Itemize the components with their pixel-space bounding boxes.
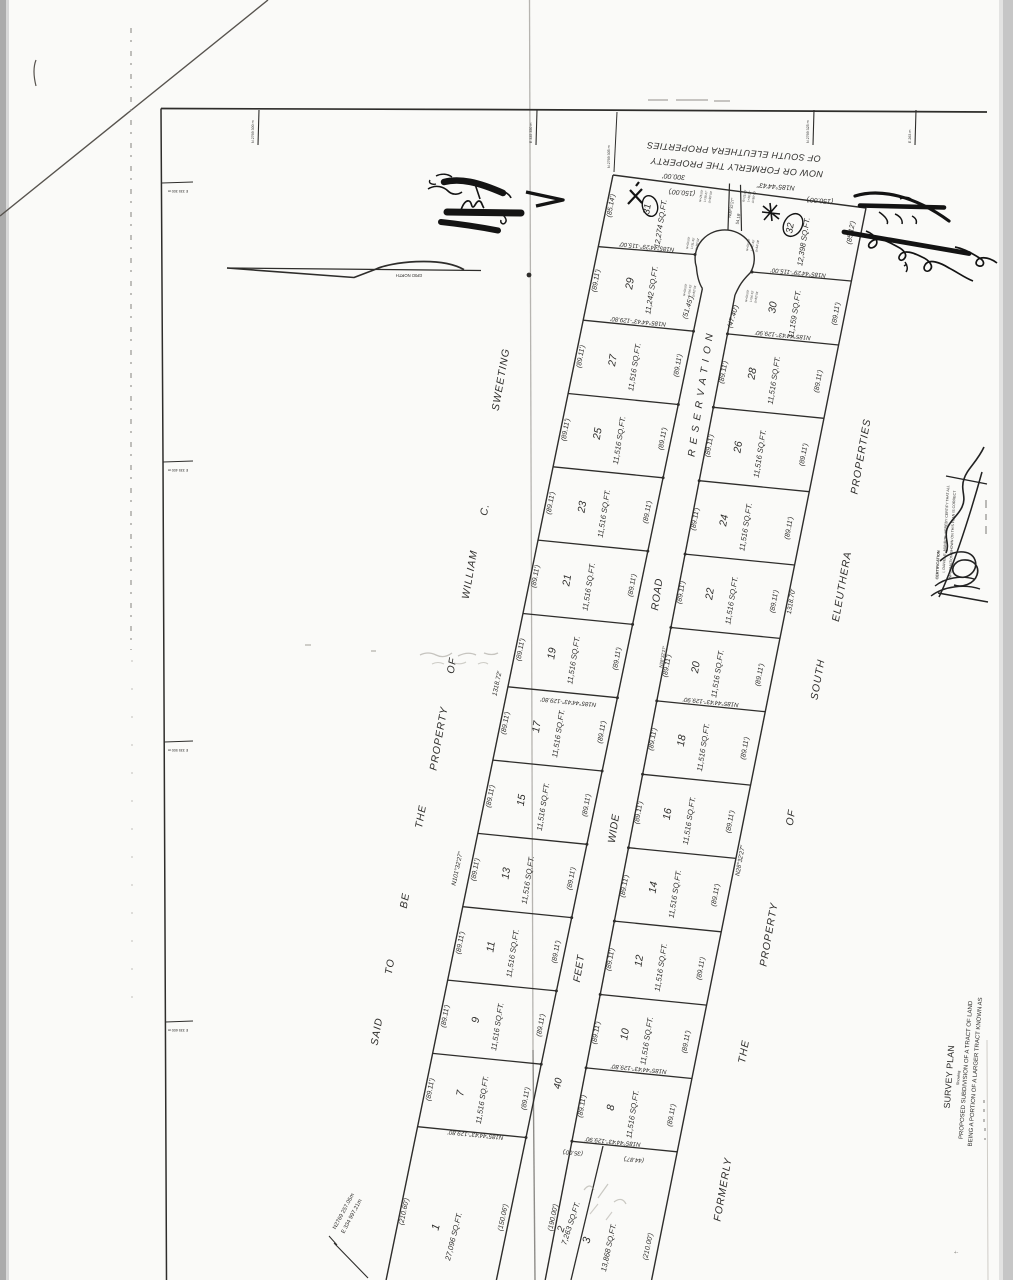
svg-text:10: 10 — [618, 1027, 632, 1041]
svg-text:28: 28 — [745, 367, 759, 382]
svg-text:20: 20 — [689, 660, 703, 675]
svg-text:19: 19 — [545, 647, 559, 661]
svg-text:+-: +- — [954, 1250, 959, 1256]
svg-text:E 335 600 m: E 335 600 m — [168, 1028, 188, 1032]
svg-text:14: 14 — [647, 881, 661, 895]
svg-text:E 335 400 m: E 335 400 m — [168, 468, 188, 472]
svg-text:11: 11 — [484, 940, 498, 953]
svg-text:24: 24 — [717, 514, 731, 529]
svg-text:22: 22 — [703, 587, 717, 602]
svg-text:30: 30 — [766, 301, 780, 315]
svg-text:21: 21 — [560, 574, 574, 588]
svg-text:25: 25 — [591, 427, 605, 442]
svg-text:12: 12 — [632, 954, 646, 968]
svg-text:18: 18 — [675, 734, 689, 748]
svg-text:29: 29 — [623, 277, 637, 292]
svg-text:GRID NORTH: GRID NORTH — [396, 273, 422, 278]
svg-text:N 2769 325 m: N 2769 325 m — [806, 120, 810, 143]
svg-text:C.: C. — [479, 503, 492, 517]
svg-text:26: 26 — [731, 440, 745, 455]
svg-text:E 263 m: E 263 m — [908, 130, 912, 143]
svg-text:23: 23 — [575, 500, 589, 515]
svg-text:N 2769 300 m: N 2769 300 m — [251, 120, 255, 143]
svg-text:E 335 350 m: E 335 350 m — [529, 123, 533, 143]
svg-text:15: 15 — [515, 793, 529, 807]
svg-text:E 335 500 m: E 335 500 m — [168, 748, 188, 752]
svg-text:E 335 300 m: E 335 300 m — [168, 189, 188, 193]
svg-text:31: 31 — [641, 203, 654, 215]
svg-text:N 2769 305 m: N 2769 305 m — [607, 145, 611, 168]
svg-text:13: 13 — [499, 867, 513, 881]
svg-text:16: 16 — [661, 807, 675, 821]
